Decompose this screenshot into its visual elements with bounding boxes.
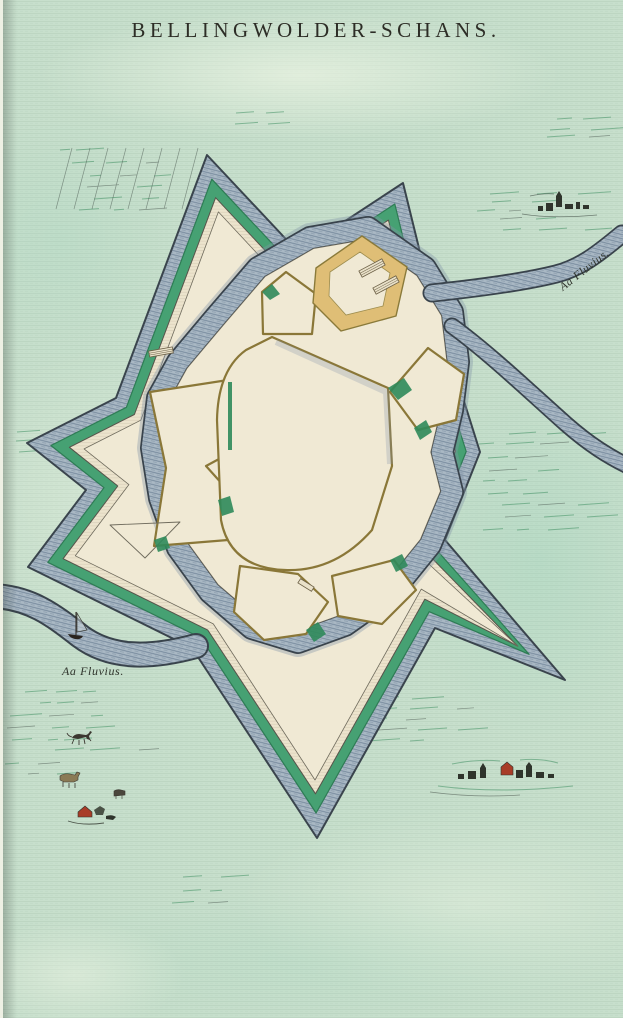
map-title: BELLINGWOLDER-SCHANS.: [131, 18, 500, 42]
river-label-left: Aa Fluvius.: [61, 664, 124, 678]
page-edge-highlight: [0, 0, 3, 1018]
page-gutter-shadow: [3, 0, 17, 1018]
map-engraving: BELLINGWOLDER-SCHANS. Aa Fluvius. Aa Flu…: [0, 0, 623, 1018]
engraved-map-page: BELLINGWOLDER-SCHANS. Aa Fluvius. Aa Flu…: [0, 0, 623, 1018]
